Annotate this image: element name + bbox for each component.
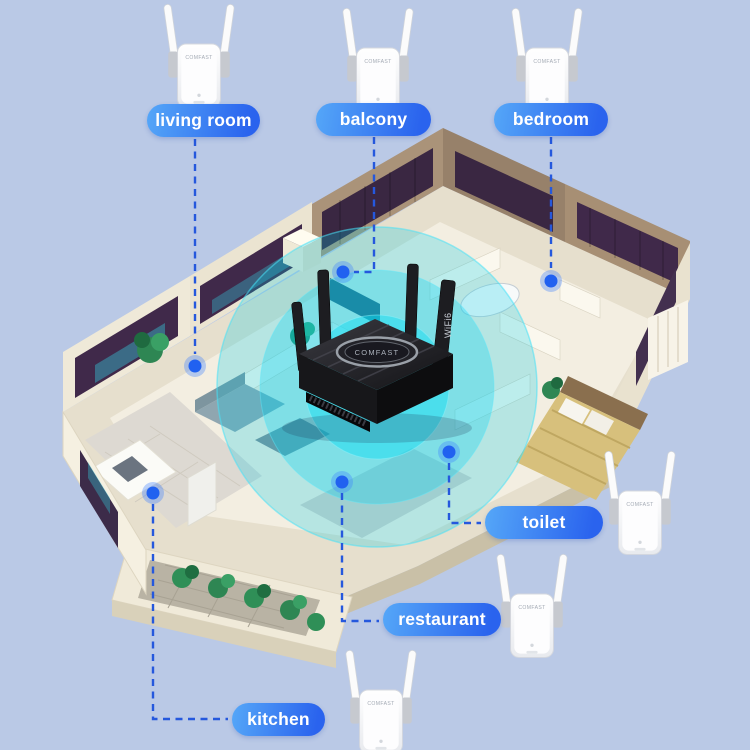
room-label-bedroom: bedroom: [494, 103, 608, 136]
signal-dot-toilet: [438, 441, 460, 463]
room-label-restaurant: restaurant: [383, 603, 501, 636]
wifi-extender-restaurant: [484, 553, 580, 663]
wifi-coverage-scene: COMFAST: [0, 0, 750, 750]
signal-dot-restaurant: [331, 471, 353, 493]
room-label-balcony: balcony: [316, 103, 431, 136]
room-label-kitchen: kitchen: [232, 703, 325, 736]
router-logo-plate: COMFAST: [337, 338, 417, 367]
signal-dot-bedroom: [540, 270, 562, 292]
signal-dot-balcony: [332, 261, 354, 283]
signal-dot-kitchen: [142, 482, 164, 504]
signal-dot-living-room: [184, 355, 206, 377]
router-wifi6-badge: WiFi6: [443, 313, 453, 339]
wifi-extender-bedroom: [499, 7, 595, 117]
room-label-toilet: toilet: [485, 506, 603, 539]
wifi-extender-balcony: [330, 7, 426, 117]
room-label-living-room: living room: [147, 104, 260, 137]
wifi-extender-toilet: [592, 450, 688, 560]
wifi-extender-kitchen: [333, 649, 429, 750]
router-brand-text: COMFAST: [355, 348, 400, 357]
wifi-extender-living-room: [151, 3, 247, 113]
